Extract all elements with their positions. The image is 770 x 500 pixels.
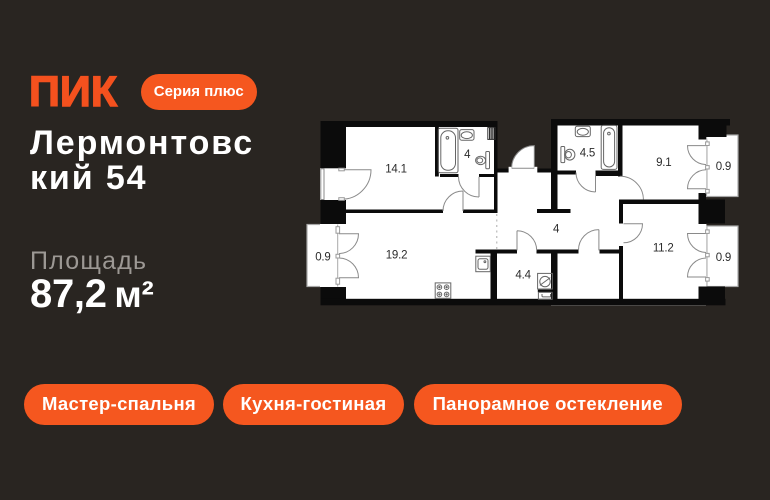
svg-text:4.4: 4.4 <box>515 269 531 281</box>
svg-text:9.1: 9.1 <box>656 157 671 169</box>
svg-text:19.2: 19.2 <box>386 249 408 261</box>
svg-text:11.2: 11.2 <box>653 242 674 254</box>
svg-text:4: 4 <box>464 149 471 161</box>
svg-text:0.9: 0.9 <box>716 252 731 264</box>
svg-text:0.9: 0.9 <box>716 161 731 173</box>
svg-text:4.5: 4.5 <box>580 147 595 159</box>
svg-text:14.1: 14.1 <box>385 164 407 176</box>
svg-text:4: 4 <box>553 224 560 236</box>
svg-text:0.9: 0.9 <box>315 251 330 263</box>
